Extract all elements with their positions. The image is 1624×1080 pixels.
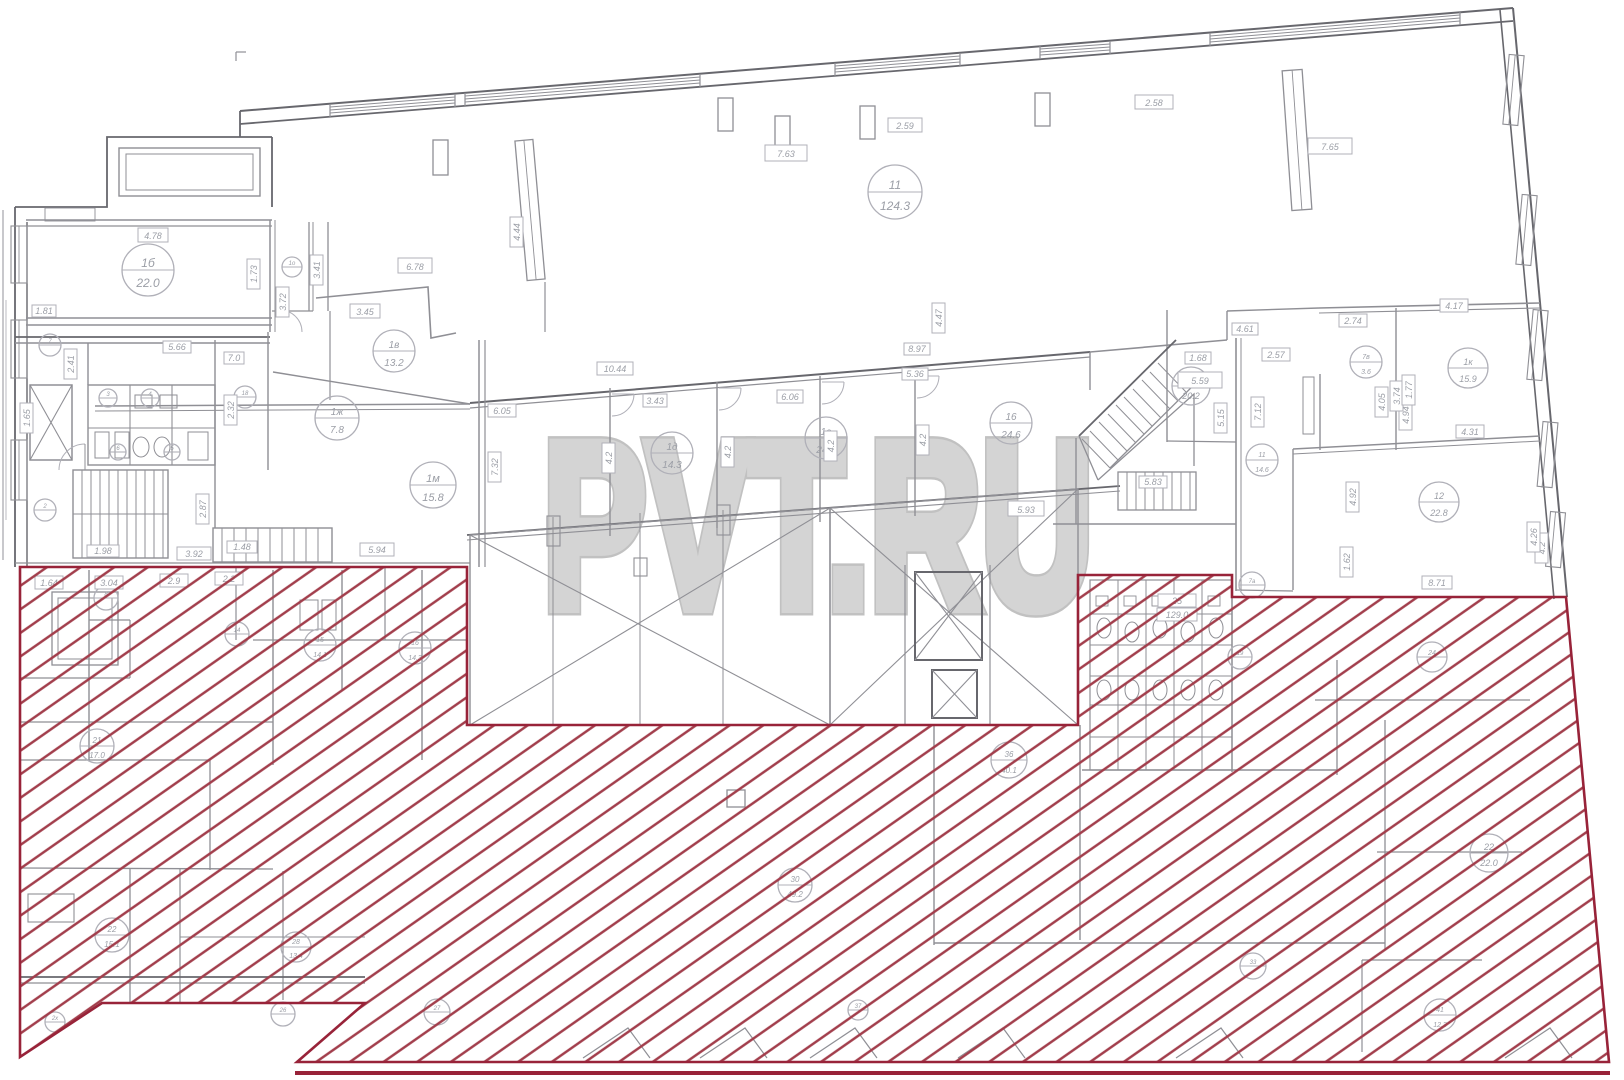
svg-text:7в: 7в [1362,354,1370,361]
svg-text:1.62: 1.62 [1342,553,1352,571]
svg-text:5.94: 5.94 [368,545,386,555]
svg-text:4.78: 4.78 [144,231,162,241]
svg-text:13.2: 13.2 [384,358,404,369]
svg-text:4.26: 4.26 [1529,528,1539,546]
svg-text:6.05: 6.05 [493,406,512,416]
svg-text:18: 18 [242,391,249,397]
svg-text:3.74: 3.74 [1392,387,1402,405]
svg-text:4.47: 4.47 [934,308,944,327]
svg-text:7.65: 7.65 [1321,142,1340,152]
svg-text:15.9: 15.9 [1459,374,1477,384]
svg-text:7.63: 7.63 [777,149,795,159]
svg-text:22.8: 22.8 [1429,508,1448,518]
svg-text:4.2: 4.2 [723,446,733,459]
svg-text:1к: 1к [1463,357,1473,367]
svg-text:1б: 1б [141,256,156,270]
svg-text:14.3: 14.3 [662,460,682,471]
svg-text:3.41: 3.41 [312,261,322,279]
svg-text:4.61: 4.61 [1236,324,1254,334]
svg-text:26: 26 [279,1008,287,1014]
svg-text:1д: 1д [666,442,678,453]
svg-text:1.81: 1.81 [35,306,53,316]
svg-text:1.73: 1.73 [249,265,259,283]
svg-text:16: 16 [1005,412,1017,423]
svg-text:2.32: 2.32 [226,401,236,420]
svg-text:4.92: 4.92 [1348,488,1358,506]
svg-text:11: 11 [1258,452,1265,459]
svg-text:4.44: 4.44 [512,223,522,241]
svg-text:3.6: 3.6 [1361,369,1371,376]
svg-text:4.2: 4.2 [826,440,836,453]
svg-text:6.06: 6.06 [781,392,799,402]
svg-text:20.2: 20.2 [1181,391,1200,401]
svg-text:1.98: 1.98 [94,546,112,556]
svg-text:4.2: 4.2 [604,452,614,465]
svg-text:3.45: 3.45 [356,307,375,317]
svg-text:10.44: 10.44 [604,364,627,374]
svg-text:5.59: 5.59 [1191,376,1209,386]
svg-text:4.05: 4.05 [1377,392,1387,411]
svg-text:1.68: 1.68 [1189,353,1207,363]
svg-text:1.65: 1.65 [22,408,32,427]
svg-text:5.15: 5.15 [1216,408,1226,427]
svg-text:1.48: 1.48 [233,542,251,552]
svg-text:15.8: 15.8 [422,492,444,504]
svg-text:7а: 7а [1249,579,1256,585]
svg-text:11: 11 [889,178,901,192]
svg-text:3.92: 3.92 [185,549,203,559]
svg-text:4.17: 4.17 [1445,301,1464,311]
svg-text:2.58: 2.58 [1144,98,1163,108]
svg-text:5.93: 5.93 [1017,505,1035,515]
svg-text:7.0: 7.0 [228,353,241,363]
svg-text:7.12: 7.12 [1253,403,1263,421]
svg-text:12: 12 [1434,491,1444,501]
svg-text:2.57: 2.57 [1266,350,1286,360]
svg-text:2.59: 2.59 [895,121,914,131]
svg-text:5.66: 5.66 [168,342,186,352]
svg-text:7.32: 7.32 [490,458,500,476]
svg-text:7.8: 7.8 [330,425,344,436]
svg-text:14.6: 14.6 [1255,467,1269,474]
svg-text:6.78: 6.78 [406,262,424,272]
svg-text:8.71: 8.71 [1428,578,1446,588]
svg-text:5.83: 5.83 [1144,477,1162,487]
svg-text:5.36: 5.36 [906,369,924,379]
svg-text:8.97: 8.97 [908,344,927,354]
svg-text:1.77: 1.77 [1404,380,1414,399]
svg-text:124.3: 124.3 [880,199,910,213]
svg-text:1о: 1о [289,261,296,267]
svg-text:2.87: 2.87 [198,499,208,519]
svg-text:3.43: 3.43 [646,396,664,406]
svg-text:24.6: 24.6 [1000,430,1021,441]
svg-text:22.0: 22.0 [135,276,160,290]
svg-text:2.41: 2.41 [66,355,76,374]
svg-text:1м: 1м [426,473,440,485]
svg-text:2: 2 [42,504,47,510]
svg-text:1ж: 1ж [331,407,345,418]
svg-text:3.72: 3.72 [278,293,288,311]
svg-text:4.31: 4.31 [1461,427,1479,437]
svg-text:4.2: 4.2 [918,434,928,447]
svg-text:2.74: 2.74 [1343,316,1362,326]
svg-text:1в: 1в [389,340,400,351]
